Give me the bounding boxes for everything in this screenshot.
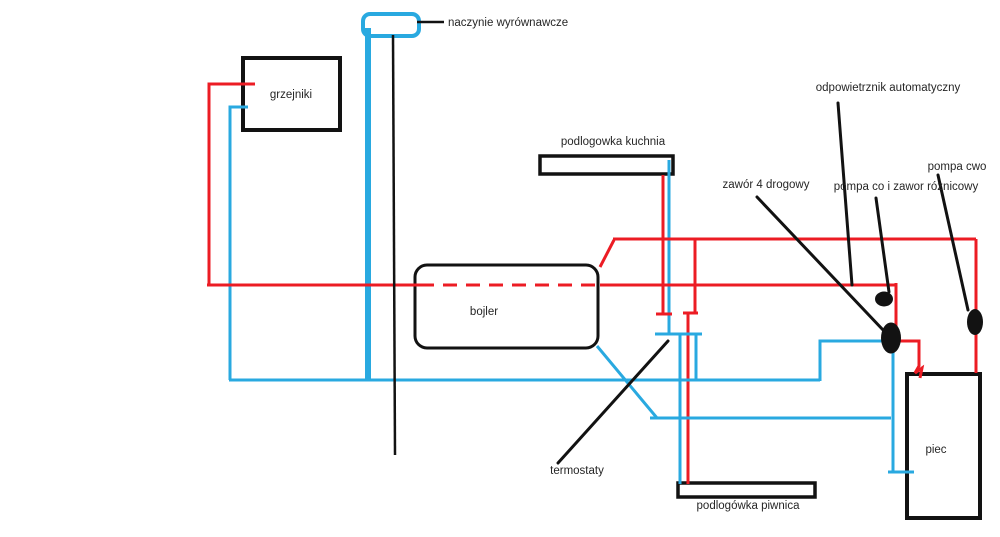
- co-pump-label: pompa co i zawor róznicowy: [834, 181, 979, 193]
- expansion-vessel-label: naczynie wyrównawcze: [448, 17, 568, 29]
- kitchen-floor-heating-bar: [540, 156, 673, 174]
- co-pump-blob: [881, 323, 901, 354]
- thermostats-label: termostaty: [550, 465, 604, 477]
- expansion-vessel-box: [363, 14, 419, 36]
- expansion-vessel-drop-line: [393, 35, 395, 455]
- pipe-cold-return-to-pump: [820, 341, 882, 381]
- pipe-hot-manifold-drop: [683, 239, 698, 313]
- diagram-canvas: naczynie wyrównawcze grzejniki podlogowk…: [0, 0, 1000, 537]
- radiators-label: grzejniki: [270, 89, 312, 101]
- pipe-cold-radiators-return: [230, 107, 248, 380]
- air-vent-label: odpowietrznik automatyczny: [816, 82, 961, 94]
- pipe-hot-boiler-top-link: [600, 240, 614, 267]
- heating-system-diagram: naczynie wyrównawcze grzejniki podlogowk…: [0, 0, 1000, 537]
- co-pump-pointer-line: [876, 198, 889, 292]
- four-way-valve-label: zawór 4 drogowy: [723, 179, 810, 191]
- kitchen-floor-heating-label: podlogowka kuchnia: [561, 136, 666, 148]
- pipe-cold-boiler-return: [597, 346, 891, 418]
- four-way-valve-pointer-line: [757, 197, 884, 331]
- furnace-label: piec: [925, 444, 946, 456]
- cwo-pump-blob: [967, 309, 983, 335]
- cwo-pump-label: pompa cwo: [928, 161, 987, 173]
- basement-floor-heating-bar: [678, 483, 815, 497]
- basement-floor-heating-label: podlogówka piwnica: [697, 500, 801, 512]
- air-vent-blob: [875, 292, 893, 307]
- air-vent-pointer-line: [838, 103, 852, 285]
- boiler-label: bojler: [470, 306, 498, 318]
- boiler-box: [415, 265, 598, 348]
- cwo-pump-pointer-line: [938, 175, 968, 310]
- thermostats-pointer-line: [558, 341, 668, 463]
